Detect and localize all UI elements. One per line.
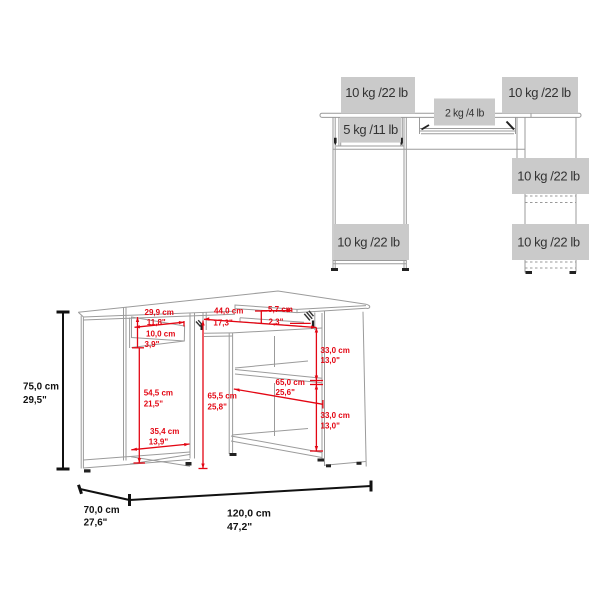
- svg-text:2,3": 2,3": [269, 317, 284, 326]
- svg-text:44,0 cm: 44,0 cm: [214, 306, 243, 315]
- svg-text:25,6": 25,6": [276, 388, 296, 397]
- svg-text:33,0 cm: 33,0 cm: [321, 411, 350, 420]
- svg-text:35,4 cm: 35,4 cm: [150, 427, 179, 436]
- svg-text:75,0 cm: 75,0 cm: [23, 382, 59, 393]
- svg-text:10,0 cm: 10,0 cm: [146, 329, 175, 338]
- svg-text:13,9": 13,9": [149, 437, 169, 446]
- svg-text:10 kg /22 lb: 10 kg /22 lb: [517, 234, 580, 249]
- svg-text:13,0": 13,0": [321, 356, 341, 365]
- svg-text:10 kg /22 lb: 10 kg /22 lb: [508, 85, 571, 100]
- svg-text:5 kg /11 lb: 5 kg /11 lb: [343, 122, 398, 137]
- svg-text:54,5 cm: 54,5 cm: [144, 389, 173, 398]
- svg-text:3,9": 3,9": [145, 340, 160, 349]
- svg-text:21,5": 21,5": [144, 400, 164, 409]
- svg-text:10 kg /22 lb: 10 kg /22 lb: [345, 85, 408, 100]
- svg-text:29,5": 29,5": [23, 395, 47, 406]
- svg-text:27,6": 27,6": [84, 518, 108, 529]
- svg-text:17,3": 17,3": [213, 318, 233, 327]
- svg-text:5,7 cm: 5,7 cm: [268, 305, 293, 314]
- svg-text:33,0 cm: 33,0 cm: [321, 346, 350, 355]
- svg-text:120,0 cm: 120,0 cm: [227, 509, 271, 520]
- svg-text:29,9 cm: 29,9 cm: [145, 308, 174, 317]
- svg-text:10 kg /22 lb: 10 kg /22 lb: [337, 234, 400, 249]
- svg-text:65,5 cm: 65,5 cm: [208, 391, 237, 400]
- svg-text:2 kg /4 lb: 2 kg /4 lb: [445, 108, 484, 120]
- svg-text:25,8": 25,8": [208, 402, 228, 411]
- svg-text:10 kg /22 lb: 10 kg /22 lb: [517, 168, 580, 183]
- svg-text:11,8": 11,8": [147, 318, 166, 327]
- svg-text:70,0 cm: 70,0 cm: [84, 505, 120, 516]
- svg-text:13,0": 13,0": [321, 422, 341, 431]
- svg-text:47,2": 47,2": [227, 522, 252, 533]
- svg-text:65,0 cm: 65,0 cm: [276, 378, 305, 387]
